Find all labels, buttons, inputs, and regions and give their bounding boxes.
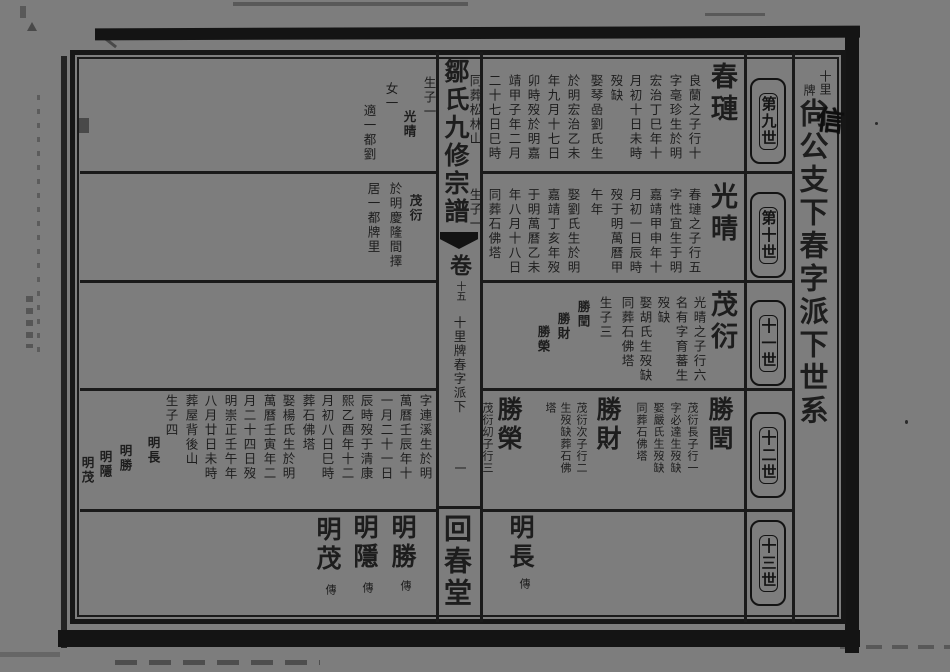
entry-text-column: 塔 — [545, 402, 556, 414]
entry-text-column: 嘉靖甲申年十 — [648, 188, 661, 275]
son-name: 明長 — [146, 436, 159, 465]
generation-label: 十三世 — [759, 535, 778, 592]
band-separator — [481, 280, 744, 283]
ancestor-name: 茂衍 — [708, 290, 735, 354]
entry-text-column: 同葬松林山 — [468, 74, 481, 147]
entry-text-column: 生子一 — [422, 76, 435, 120]
entry-text-column: 光晴之子行六 — [692, 296, 705, 383]
band-separator — [80, 509, 436, 512]
ancestor-name: 光晴 — [708, 182, 735, 246]
band-separator — [80, 388, 436, 391]
film-artifact — [20, 6, 26, 18]
entry-text-column: 春璉之子行五 — [687, 188, 700, 275]
entry-text-column: 月初十日未時 — [628, 74, 641, 161]
entry-text-column: 萬曆壬辰年十 — [398, 394, 411, 481]
entry-text-column: 字連溪生於明 — [418, 394, 431, 481]
entry-text-column: 午年 — [589, 188, 602, 217]
son-name: 明茂 — [80, 456, 93, 485]
ancestor-name: 明隱 — [352, 514, 377, 572]
generation-label: 十一世 — [759, 315, 778, 372]
biography-marker: 傳 — [519, 578, 530, 590]
entry-text-column: 熙乙酉年十二 — [340, 394, 353, 481]
entry-text-column: 娶琴嵒劉氏生 — [589, 74, 602, 161]
entry-text-column: 年八月十八日 — [507, 188, 520, 275]
hall-box-line — [436, 506, 482, 509]
entry-text-column: 娶楊氏生於明 — [281, 394, 294, 481]
entry-text-column: 於明宏治乙未 — [566, 74, 579, 161]
page-edge-bottom — [58, 630, 860, 647]
generation-column-line — [744, 52, 747, 622]
fold-section-title: 十里牌春字派下 — [452, 316, 465, 414]
film-artifact — [37, 95, 40, 355]
fold-page-number: 一 — [454, 462, 466, 474]
ancestor-name: 明勝 — [390, 514, 415, 572]
entry-text-column: 生歿缺葬石佛 — [560, 402, 571, 474]
header-location-line1: 十里 — [819, 70, 831, 96]
ancestor-name: 勝閏 — [707, 396, 732, 454]
film-artifact — [875, 122, 878, 125]
band-separator — [481, 171, 744, 174]
entry-text-column: 葬石佛塔 — [301, 394, 314, 452]
handwritten-annotation: 信 — [812, 104, 842, 134]
band-separator — [80, 280, 436, 283]
son-name: 勝閏 — [576, 300, 589, 329]
generation-label-box: 第十世 — [750, 192, 786, 278]
page-edge-right — [845, 29, 859, 653]
film-artifact — [27, 22, 37, 31]
film-artifact — [115, 660, 320, 665]
entry-text-column: 辰時歿于清康 — [359, 394, 372, 481]
entry-text-column: 八月廿日未時 — [203, 394, 216, 481]
entry-text-column: 字亳珍生於明 — [668, 74, 681, 161]
entry-text-column: 茂衍次子行二 — [576, 402, 587, 474]
film-artifact — [0, 652, 60, 657]
generation-label: 第九世 — [759, 93, 778, 150]
entry-text-column: 適一都劉 — [362, 104, 375, 162]
son-name: 光晴 — [402, 110, 415, 139]
entry-text-column: 月二十四日歿 — [242, 394, 255, 481]
entry-text-column: 宏治丁巳年十 — [648, 74, 661, 161]
film-artifact — [905, 420, 908, 424]
entry-text-column: 靖甲子年二月 — [507, 74, 520, 161]
son-name: 明勝 — [118, 444, 131, 473]
generation-separator — [744, 280, 792, 283]
entry-text-column: 茂衍㓜子行三 — [482, 402, 493, 474]
entry-text-column: 卯時歿於明嘉 — [526, 74, 539, 161]
son-name: 勝財 — [556, 312, 569, 341]
entry-text-column: 歿缺 — [609, 74, 622, 103]
page-edge-left — [61, 56, 67, 648]
entry-text-column: 一月二十一日 — [379, 394, 392, 481]
son-name: 茂衍 — [408, 194, 421, 223]
entry-text-column: 字性宜生于明 — [668, 188, 681, 275]
biography-marker: 傳 — [362, 582, 373, 594]
biography-marker: 傳 — [325, 584, 336, 596]
entry-text-column: 于明萬曆乙未 — [526, 188, 539, 275]
entry-text-column: 同葬石佛塔 — [636, 402, 647, 462]
generation-separator — [744, 509, 792, 512]
header-title: 尙公支下春字派下世系 — [797, 98, 826, 428]
entry-text-column: 歿缺 — [656, 296, 669, 325]
film-artifact — [705, 13, 765, 16]
entry-text-column: 月初一日辰時 — [628, 188, 641, 275]
page-edge-top — [95, 26, 860, 41]
book-title: 鄒氏九修宗譜 — [443, 58, 468, 226]
ancestor-name: 勝財 — [595, 396, 620, 454]
entry-text-column: 茂衍長子行一 — [687, 402, 698, 474]
entry-text-column: 萬曆壬寅年二 — [262, 394, 275, 481]
ancestor-name: 明茂 — [315, 516, 340, 574]
generation-label-box: 第九世 — [750, 78, 786, 164]
entry-text-column: 娶胡氏生歿缺 — [638, 296, 651, 383]
entry-text-column: 年九月十七日 — [546, 74, 559, 161]
entry-text-column: 同葬石佛塔 — [620, 296, 633, 369]
entry-text-column: 娶劉氏生於明 — [566, 188, 579, 275]
generation-label-box: 十二世 — [750, 412, 786, 498]
generation-separator — [744, 171, 792, 174]
biography-marker: 傳 — [400, 580, 411, 592]
ancestor-name: 勝榮 — [496, 396, 521, 454]
band-separator — [80, 171, 436, 174]
generation-label: 第十世 — [759, 207, 778, 264]
son-name: 明隱 — [98, 450, 111, 479]
entry-text-column: 同葬石佛塔 — [487, 188, 500, 261]
genealogy-page-photo: 十里 牌 尙公支下春字派下世系 信 第九世 第十世 十一世 十二世 十三世 鄒氏… — [0, 0, 950, 672]
ancestor-name: 春璉 — [708, 62, 735, 126]
entry-text-column: 生子四 — [164, 394, 177, 438]
entry-text-column: 娶嚴氏生歿缺 — [653, 402, 664, 474]
hall-name: 回春堂 — [442, 514, 470, 610]
band-separator — [481, 509, 744, 512]
entry-text-column: 生子一 — [468, 188, 481, 232]
film-artifact — [26, 296, 33, 348]
entry-text-column: 葬屋背後山 — [184, 394, 197, 467]
entry-text-column: 名有字育蕃生 — [674, 296, 687, 383]
band-separator — [481, 388, 744, 391]
volume-number: 十五 — [454, 281, 464, 301]
entry-text-column: 女一 — [384, 82, 397, 111]
son-name: 勝榮 — [536, 325, 549, 354]
entry-text-column: 居一都牌里 — [366, 182, 379, 255]
entry-text-column: 明崇正壬午年 — [223, 394, 236, 481]
entry-text-column: 生子三 — [598, 296, 611, 340]
entry-text-column: 歿于明萬曆甲 — [609, 188, 622, 275]
ancestor-name: 明長 — [508, 514, 533, 572]
fold-column-left-line — [436, 52, 439, 622]
entry-text-column: 字必達生歿缺 — [670, 402, 681, 474]
film-artifact — [233, 2, 468, 6]
generation-label-box: 十一世 — [750, 300, 786, 386]
generation-label: 十二世 — [759, 427, 778, 484]
generation-label-box: 十三世 — [750, 520, 786, 606]
entry-text-column: 嘉靖丁亥年歿 — [546, 188, 559, 275]
entry-text-column: 於明慶隆間擇 — [388, 182, 401, 269]
entry-text-column: 二十七日巳時 — [487, 74, 500, 161]
volume-label: 卷 — [448, 254, 470, 276]
entry-text-column: 月初八日巳時 — [320, 394, 333, 481]
entry-text-column: 良蘭之子行十 — [687, 74, 700, 161]
header-location-line2: 牌 — [803, 84, 815, 97]
generation-separator — [744, 388, 792, 391]
